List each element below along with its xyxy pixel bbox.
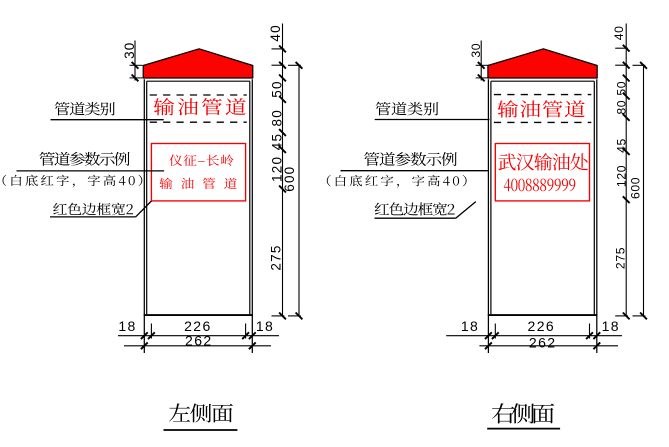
svg-text:275: 275 [269,244,284,270]
svg-text:18: 18 [256,318,274,334]
svg-text:275: 275 [614,247,628,269]
svg-text:262: 262 [185,332,213,348]
svg-text:600: 600 [629,177,643,199]
svg-text:18: 18 [118,318,136,334]
svg-text:40: 40 [268,24,283,41]
svg-text:120: 120 [614,165,628,187]
svg-text:45: 45 [270,133,285,150]
svg-text:80: 80 [614,100,628,115]
svg-text:30: 30 [469,43,483,58]
svg-text:50: 50 [614,81,628,96]
svg-text:18: 18 [461,318,479,334]
svg-text:45: 45 [614,138,628,153]
svg-text:50: 50 [270,80,285,97]
svg-text:18: 18 [602,318,620,334]
svg-text:30: 30 [122,41,137,58]
svg-text:80: 80 [270,109,285,126]
svg-text:262: 262 [529,335,557,351]
svg-text:226: 226 [528,318,556,334]
svg-text:40: 40 [612,26,626,41]
svg-text:600: 600 [282,166,297,192]
